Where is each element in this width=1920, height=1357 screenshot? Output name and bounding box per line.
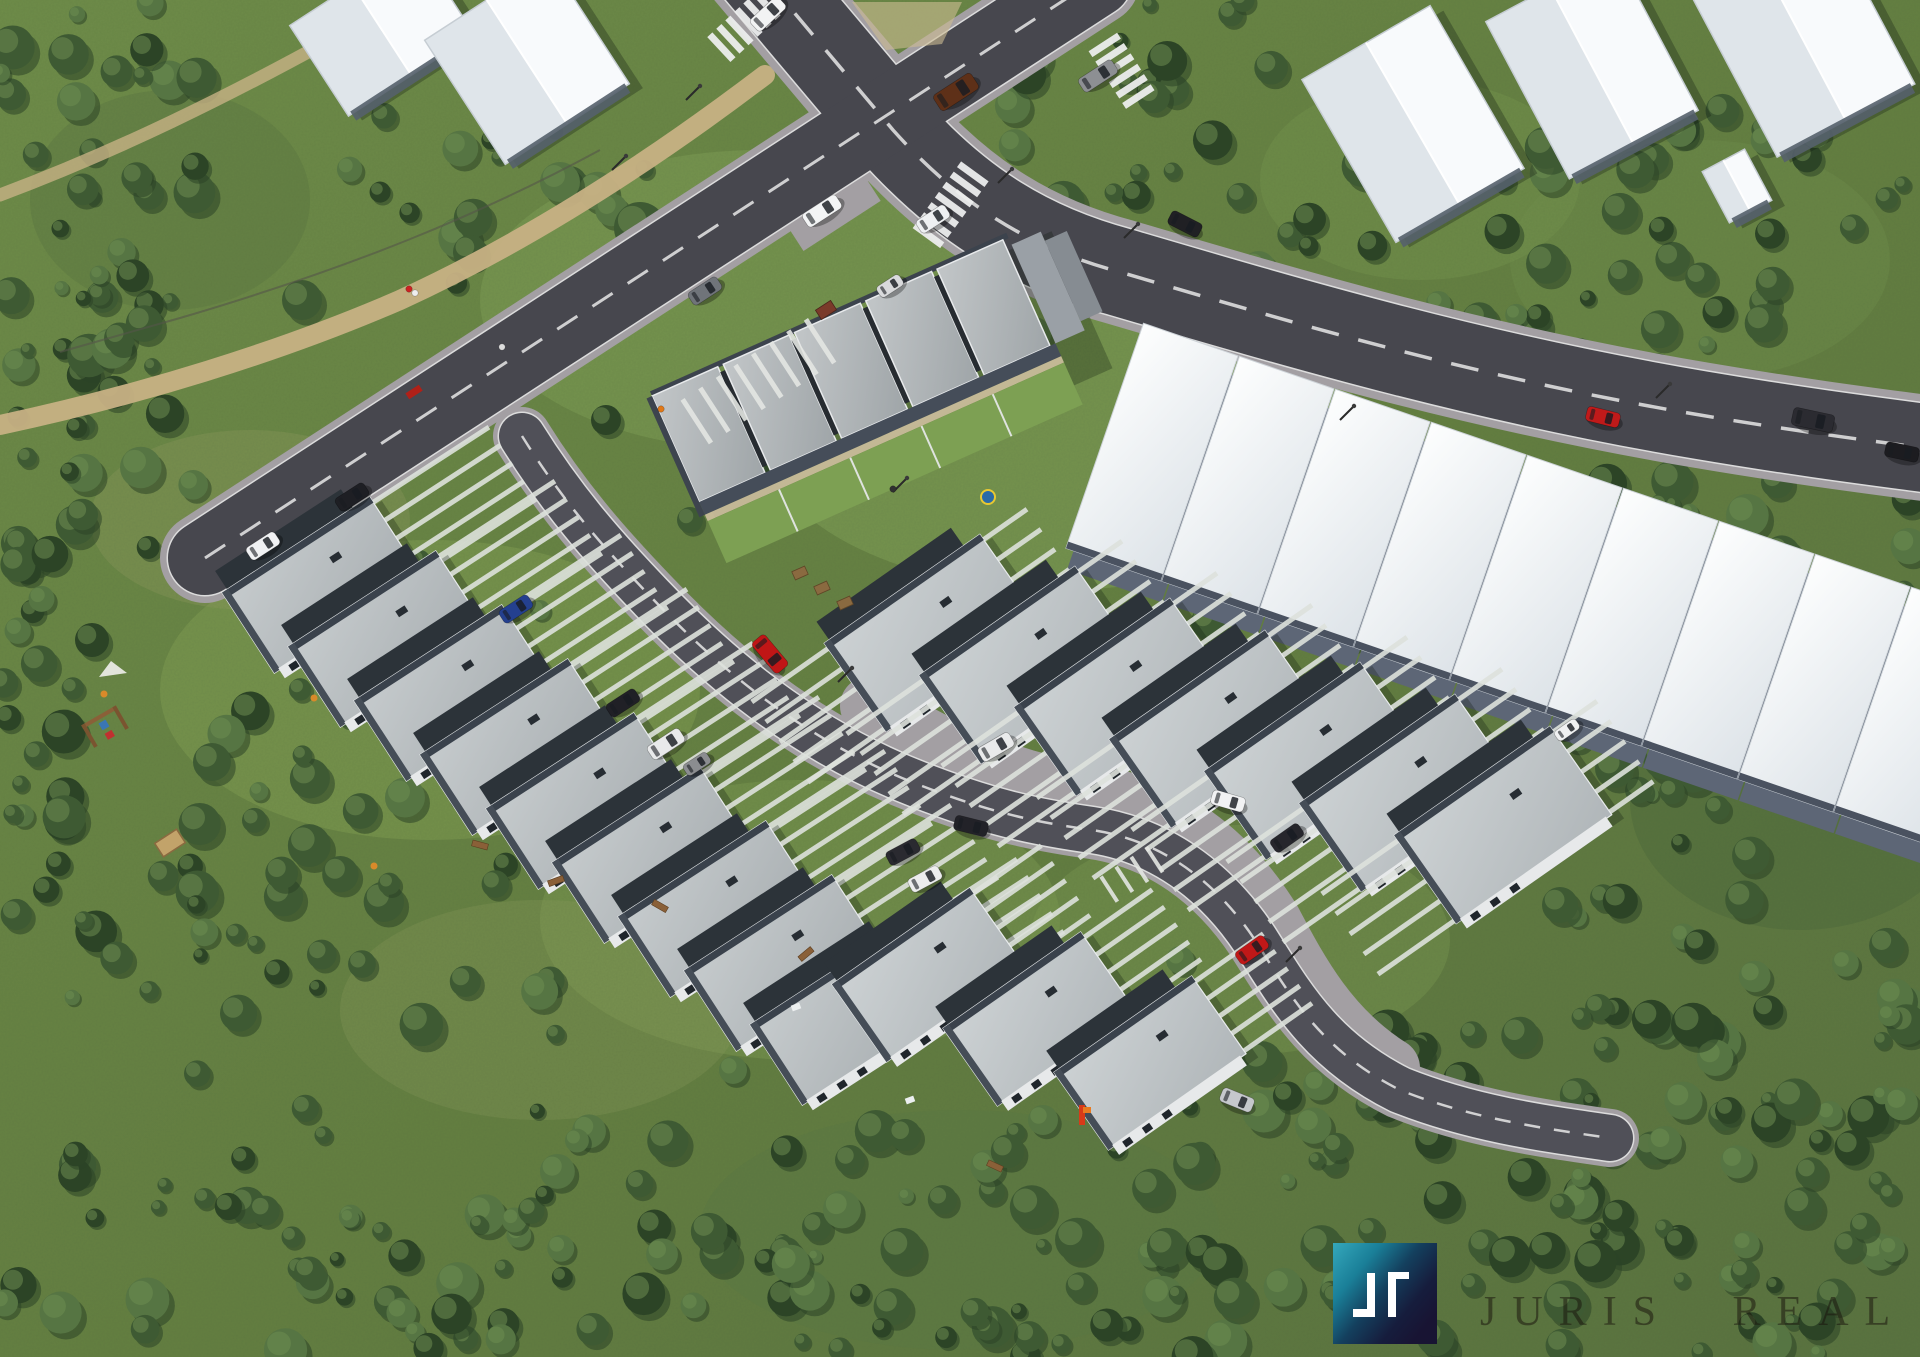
tree-highlight [1298,1110,1318,1130]
tree-highlight [1124,183,1140,199]
tree-highlight [640,1212,659,1231]
tree-highlight [217,1195,232,1210]
tree-highlight [1768,1278,1777,1287]
tree-highlight [294,1097,309,1112]
tree-highlight [626,1276,650,1300]
tree-highlight [1735,1233,1750,1248]
tree-highlight [291,680,303,692]
tree-highlight [266,961,280,975]
tree-highlight [133,36,151,54]
tree-highlight [1673,925,1687,939]
tree-highlight [339,159,353,173]
tree-highlight [416,1335,433,1352]
tree-highlight [1165,164,1175,174]
tree-highlight [103,58,121,76]
tree-highlight [182,806,205,829]
tree-highlight [1471,1232,1489,1250]
tree-highlight [543,1157,562,1176]
tree-highlight [1016,1323,1033,1340]
tree-highlight [1208,1323,1232,1347]
tree-highlight [1758,269,1777,288]
tree-highlight [87,1210,97,1220]
tree-highlight [46,798,70,822]
tree-highlight [124,165,141,182]
tree-highlight [1131,165,1141,175]
tree-highlight [56,282,64,290]
tree-highlight [1267,1271,1288,1292]
tree-highlight [553,1268,565,1280]
lamp-head [905,476,909,480]
tree-highlight [1851,1099,1874,1122]
tree-highlight [1511,1161,1532,1182]
tree-highlight [1610,262,1627,279]
tree-highlight [548,1026,558,1036]
tree-highlight [694,1216,714,1236]
tree-highlight [13,777,22,786]
tree-highlight [1811,1346,1819,1354]
tree-highlight [1741,963,1758,980]
tree-highlight [1310,1153,1319,1162]
tree-highlight [1325,1135,1340,1150]
tree-highlight [1605,886,1624,905]
tree-highlight [1135,1172,1157,1194]
person [406,286,412,292]
tree-highlight [76,913,86,923]
tree-highlight [296,1259,313,1276]
tree-highlight [65,1143,79,1157]
tree-highlight [524,976,544,996]
tree-highlight [1708,96,1727,115]
tree-highlight [43,1295,66,1318]
tree-highlight [1654,464,1677,487]
tree-highlight [567,1130,580,1143]
tree-highlight [1304,1228,1327,1251]
tree-highlight [1058,1221,1082,1245]
tree-highlight [244,810,258,824]
tree-highlight [1305,1072,1322,1089]
tree-highlight [1463,1275,1475,1287]
tree-highlight [70,7,79,16]
play-ball [101,691,108,698]
tree-highlight [1673,835,1683,845]
lamp-head [1352,404,1356,408]
tree-highlight [1203,1247,1227,1271]
tree-highlight [7,620,22,635]
tree-highlight [579,1315,597,1333]
person [658,406,664,412]
tree-highlight [66,991,74,999]
tree-highlight [159,1179,167,1187]
tree-highlight [179,856,193,870]
tree-highlight [388,780,410,802]
tree-highlight [1693,1344,1704,1355]
tree-highlight [495,854,508,867]
tree-highlight [69,501,86,518]
play-ball [371,863,378,870]
aerial-3d-render: JURIS REAL [0,0,1920,1357]
tree-highlight [650,1123,673,1146]
tree-highlight [26,743,40,757]
tree-highlight [1300,238,1311,249]
tree-highlight [434,1297,456,1319]
paddling-pool [981,490,995,504]
tree-highlight [520,1199,535,1214]
tree-highlight [795,1335,804,1344]
tree-highlight [1811,1131,1823,1143]
tree-highlight [1717,1099,1732,1114]
tree-highlight [310,981,319,990]
tree-highlight [403,1006,427,1030]
tree-highlight [679,509,693,523]
person [890,486,896,492]
tree-highlight [109,240,125,256]
tree-highlight [138,538,151,551]
tree-highlight [294,747,305,758]
tree-highlight [439,1265,463,1289]
tree-highlight [1874,1088,1884,1098]
tree-highlight [389,1300,406,1317]
tree-highlight [1591,1224,1601,1234]
tree-highlight [5,351,23,369]
tree-highlight [531,1105,539,1113]
tree-highlight [342,1210,352,1220]
tree-highlight [900,1190,909,1199]
tree-highlight [1667,1084,1688,1105]
person [412,290,418,296]
tree-highlight [373,1223,383,1233]
tree-highlight [210,718,231,739]
tree-highlight [1707,798,1721,812]
tree-highlight [25,144,39,158]
tree-highlight [267,1331,291,1355]
tree-highlight [891,1121,909,1139]
tree-highlight [1150,44,1172,66]
tree-highlight [150,863,167,880]
tree-highlight [24,648,44,668]
lamp-head [850,666,854,670]
tree-highlight [249,937,258,946]
tree-highlight [1656,1221,1666,1231]
tree-highlight [1279,224,1293,238]
tree-highlight [1545,890,1565,910]
tree-highlight [3,901,20,918]
person [499,344,505,350]
tree-highlight [496,1261,505,1270]
tree-highlight [309,942,325,958]
tree-highlight [69,176,86,193]
tree-highlight [149,397,170,418]
tree-highlight [3,1270,23,1290]
tree-highlight [1893,531,1913,551]
tree-highlight [1170,1287,1179,1296]
tree-highlight [1528,306,1541,319]
tree-highlight [19,449,30,460]
tree-highlight [775,1248,796,1269]
tree-highlight [183,155,198,170]
tree-highlight [78,626,97,645]
tree-highlight [1037,1240,1045,1248]
tree-highlight [1880,1006,1892,1018]
tree-highlight [283,1228,295,1240]
tree-highlight [194,949,202,957]
tree-highlight [1106,185,1116,195]
tree-highlight [407,1323,418,1334]
tree-highlight [316,1128,326,1138]
lamp-head [698,84,702,88]
tree-highlight [1635,1003,1657,1025]
tree-highlight [1584,1094,1593,1103]
lamp-head [624,154,628,158]
watermark-text: JURIS REAL [1480,1289,1906,1335]
tree-highlight [1150,1231,1172,1253]
tree-highlight [1595,1038,1608,1051]
tree-highlight [48,853,62,867]
tree-highlight [593,407,610,424]
tree-highlight [504,1209,518,1223]
tree-highlight [1729,497,1752,520]
tree-highlight [227,925,238,936]
tree-highlight [141,982,152,993]
tree-highlight [537,1187,547,1197]
tree-highlight [1700,337,1709,346]
tree-highlight [1427,1184,1448,1205]
tree-highlight [7,531,24,548]
tree-highlight [234,694,255,715]
tree-highlight [371,183,383,195]
tree-highlight [826,1193,847,1214]
tree-highlight [484,872,499,887]
tree-highlight [1229,185,1244,200]
tree-highlight [145,359,154,368]
tree-highlight [380,874,392,886]
tree-highlight [62,464,72,474]
tree-highlight [1896,178,1905,187]
tree-highlight [134,68,144,78]
tree-highlight [1532,1235,1552,1255]
tree-highlight [1577,1243,1600,1266]
tree-highlight [456,238,475,257]
tree-highlight [830,1339,843,1352]
tree-highlight [937,1328,949,1340]
tree-highlight [325,859,345,879]
tree-highlight [1587,996,1602,1011]
tree-highlight [186,1062,201,1077]
lamp-head [1136,222,1140,226]
tree-highlight [488,1326,505,1343]
tree-highlight [452,968,469,985]
tree-highlight [1762,1093,1771,1102]
tree-highlight [1296,205,1314,223]
tree-highlight [1837,1133,1857,1153]
tree-highlight [993,1137,1011,1155]
tree-highlight [756,1251,769,1264]
tree-highlight [1651,218,1665,232]
tree-highlight [1658,245,1677,264]
tree-highlight [181,472,197,488]
tree-highlight [804,1214,820,1230]
tree-highlight [77,292,86,301]
tree-highlight [34,539,54,559]
tree-highlight [129,1281,153,1305]
tree-highlight [192,920,207,935]
tree-highlight [179,61,201,83]
play-ball [311,695,318,702]
tree-highlight [1852,1215,1867,1230]
tree-highlight [91,267,101,277]
tree-highlight [1777,1082,1800,1105]
tree-highlight [930,1187,946,1203]
tree-highlight [471,1217,481,1227]
tree-highlight [1879,981,1899,1001]
tree-highlight [1877,189,1889,201]
tree-highlight [1176,1146,1199,1169]
tree-highlight [1842,216,1856,230]
tree-highlight [1757,221,1774,238]
tree-highlight [1030,1107,1047,1124]
tree-highlight [1275,1084,1291,1100]
tree-highlight [1068,1274,1084,1290]
tree-highlight [1605,1202,1623,1220]
tree-highlight [188,897,198,907]
tree-highlight [223,997,243,1017]
tree-highlight [628,1172,643,1187]
tree-highlight [1504,1020,1525,1041]
tree-highlight [1686,932,1703,949]
tree-highlight [1644,313,1665,334]
tree-highlight [773,1138,791,1156]
tree-highlight [1667,1230,1682,1245]
tree-highlight [1748,307,1769,328]
tree-highlight [1529,247,1551,269]
play-toy-part [1083,1107,1091,1113]
tree-highlight [119,262,137,280]
tree-highlight [1675,1274,1684,1283]
tree-highlight [1728,883,1749,904]
tree-highlight [1053,1336,1064,1347]
tree-highlight [35,878,50,893]
tree-highlight [1507,306,1519,318]
tree-highlight [1573,1169,1584,1180]
tree-highlight [337,1289,347,1299]
tree-highlight [852,1285,863,1296]
tree-highlight [350,952,365,967]
tree-highlight [1008,1124,1018,1134]
tree-highlight [45,713,69,737]
tree-highlight [682,1294,696,1308]
tree-highlight [251,783,261,793]
tree-highlight [1145,1279,1168,1302]
tree-highlight [874,1320,885,1331]
scene-svg: JURIS REAL [0,0,1920,1357]
tree-highlight [1487,216,1506,235]
tree-highlight [1733,1261,1747,1275]
tree-highlight [1651,1129,1670,1148]
tree-highlight [543,165,565,187]
tree-highlight [1552,1195,1564,1207]
tree-highlight [291,827,315,851]
tree-highlight [1735,839,1756,860]
tree-highlight [152,1201,160,1209]
tree-highlight [196,746,217,767]
tree-highlight [68,419,79,430]
tree-highlight [648,1241,666,1259]
tree-highlight [1562,1081,1581,1100]
tree-highlight [1875,1033,1884,1042]
tree-highlight [60,85,81,106]
tree-highlight [1705,299,1723,317]
tree-highlight [53,221,63,231]
tree-highlight [30,588,44,602]
tree-highlight [445,133,465,153]
tree-highlight [5,806,15,816]
tree-highlight [51,37,73,59]
tree-highlight [876,1291,896,1311]
tree-highlight [1836,1233,1852,1249]
tree-highlight [285,283,307,305]
tree-highlight [1217,1281,1240,1304]
tree-highlight [837,1147,854,1164]
tree-highlight [858,1113,881,1136]
tree-highlight [1661,781,1675,795]
tree-highlight [1360,1220,1374,1234]
tree-highlight [196,1189,207,1200]
tree-highlight [268,859,286,877]
tree-highlight [3,549,22,568]
tree-highlight [22,344,30,352]
tree-highlight [1281,1175,1289,1183]
tree-highlight [1093,1311,1111,1329]
tree-highlight [1360,233,1376,249]
tree-highlight [123,450,146,473]
tree-highlight [1723,1148,1741,1166]
tree-highlight [1674,1006,1698,1030]
tree-highlight [1492,1239,1515,1262]
company-logo [1333,1243,1437,1344]
tree-highlight [129,308,149,328]
tree-highlight [1462,1023,1475,1036]
lamp-head [1298,946,1302,950]
tree-highlight [133,1317,149,1333]
tree-highlight [1881,1238,1895,1252]
tree-highlight [1887,1090,1905,1108]
tree-highlight [1755,998,1772,1015]
lamp-head [1668,382,1672,386]
tree-highlight [1257,53,1275,71]
tree-highlight [1573,1009,1584,1020]
tree-highlight [1798,1160,1815,1177]
tree-highlight [331,1253,339,1261]
tree-highlight [1013,1189,1037,1213]
lamp-head [1010,167,1014,171]
tree-highlight [252,1198,268,1214]
tree-highlight [721,1058,736,1073]
tree-highlight [391,1242,409,1260]
tree-highlight [1754,1106,1776,1128]
tree-highlight [963,1300,979,1316]
tree-highlight [106,325,123,342]
tree-highlight [1196,123,1218,145]
tree-highlight [1605,196,1625,216]
tree-highlight [233,1148,246,1161]
tree-highlight [1012,1304,1021,1313]
tree-highlight [1870,1173,1882,1185]
tree-highlight [401,204,412,215]
tree-highlight [1581,292,1590,301]
tree-highlight [103,944,121,962]
tree-highlight [549,1237,564,1252]
tree-highlight [1881,1185,1893,1197]
tree-highlight [1001,132,1019,150]
